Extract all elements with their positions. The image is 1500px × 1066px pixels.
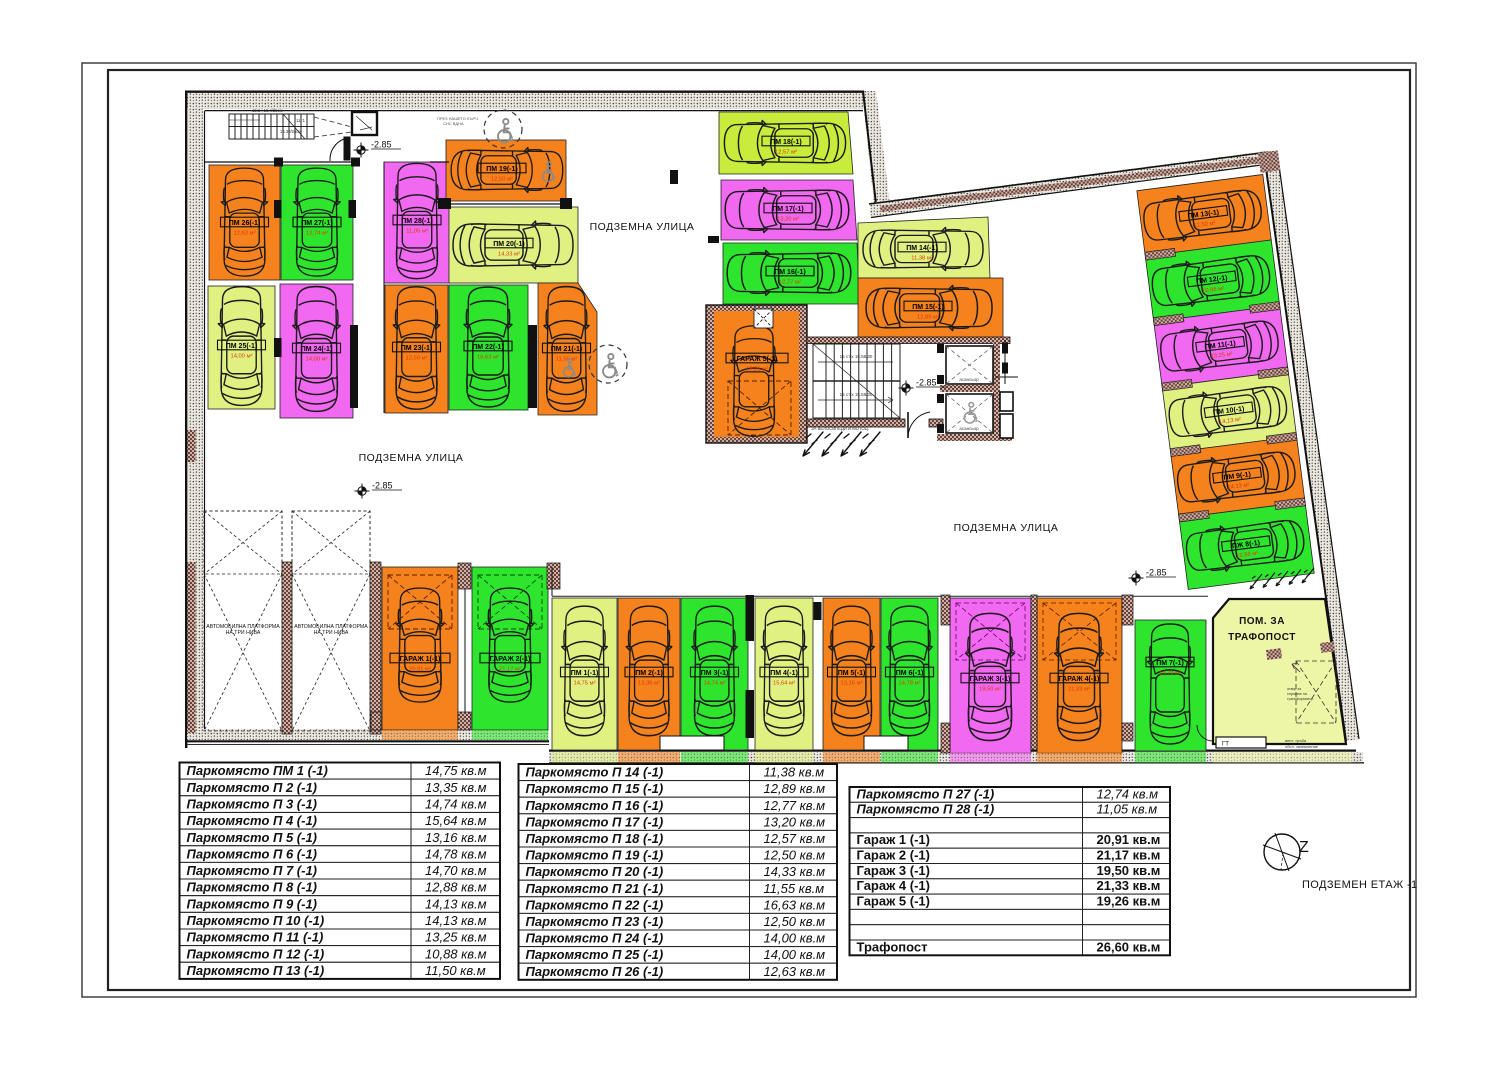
svg-text:20,91 кв.м: 20,91 кв.м — [1097, 832, 1161, 847]
svg-text:12,88 кв.м: 12,88 кв.м — [425, 880, 487, 895]
svg-text:Гараж 1 (-1): Гараж 1 (-1) — [857, 832, 931, 847]
svg-text:асансьор: асансьор — [959, 377, 979, 382]
svg-text:14,75 кв.м: 14,75 кв.м — [425, 763, 487, 778]
svg-text:15,64 м²: 15,64 м² — [773, 681, 795, 687]
svg-text:ПМ 24(-1): ПМ 24(-1) — [301, 346, 332, 353]
svg-text:Z: Z — [1299, 839, 1309, 856]
svg-text:ГАРАЖ 5(-1): ГАРАЖ 5(-1) — [737, 356, 778, 363]
svg-text:Паркомясто П 19 (-1): Паркомясто П 19 (-1) — [526, 848, 664, 863]
svg-text:11,55 м²: 11,55 м² — [556, 357, 578, 363]
svg-text:19,50 м²: 19,50 м² — [979, 687, 1001, 693]
svg-text:-2.85: -2.85 — [371, 140, 392, 150]
svg-text:14,70 кв.м: 14,70 кв.м — [425, 863, 487, 878]
svg-text:Гараж 3 (-1): Гараж 3 (-1) — [857, 863, 931, 878]
svg-text:15 ст x 15.58/30: 15 ст x 15.58/30 — [840, 392, 873, 397]
svg-text:12,50 м²: 12,50 м² — [491, 177, 513, 183]
svg-text:12,74 кв.м: 12,74 кв.м — [1097, 786, 1159, 801]
svg-text:ПОДЗЕМНА УЛИЦА: ПОДЗЕМНА УЛИЦА — [359, 452, 464, 464]
svg-text:ПМ 5(-1): ПМ 5(-1) — [838, 670, 866, 677]
svg-text:ПМ 14(-1): ПМ 14(-1) — [906, 245, 937, 252]
svg-text:15,64 кв.м: 15,64 кв.м — [425, 813, 487, 828]
svg-text:13,35 м²: 13,35 м² — [638, 681, 660, 687]
svg-text:Паркомясто П 10 (-1): Паркомясто П 10 (-1) — [187, 913, 325, 928]
svg-text:НА ТРИ НИВА: НА ТРИ НИВА — [314, 630, 349, 636]
svg-text:14,13 кв.м: 14,13 кв.м — [425, 896, 487, 911]
svg-text:Гараж 2 (-1): Гараж 2 (-1) — [857, 848, 931, 863]
svg-text:НА ТРИ НИВА: НА ТРИ НИВА — [226, 630, 261, 636]
svg-text:12,57 кв.м: 12,57 кв.м — [764, 831, 826, 846]
svg-text:-2.85: -2.85 — [372, 481, 393, 491]
svg-text:асансьор: асансьор — [959, 426, 979, 431]
svg-text:ГАРАЖ 3(-1): ГАРАЖ 3(-1) — [970, 676, 1011, 683]
svg-text:Паркомясто П 14 (-1): Паркомясто П 14 (-1) — [526, 765, 664, 780]
svg-text:ПМ 4(-1): ПМ 4(-1) — [770, 670, 798, 677]
svg-text:Паркомясто ПМ 1 (-1): Паркомясто ПМ 1 (-1) — [187, 763, 328, 778]
svg-text:вент. тръба: вент. тръба — [1285, 738, 1307, 743]
svg-text:Паркомясто П 9 (-1): Паркомясто П 9 (-1) — [187, 896, 318, 911]
svg-text:ЗА ВЕЛОСИПЕДИ И МОТОЦ.: ЗА ВЕЛОСИПЕДИ И МОТОЦ. — [811, 426, 869, 431]
svg-text:Паркомясто П 24 (-1): Паркомясто П 24 (-1) — [526, 931, 664, 946]
svg-text:Паркомясто П 12 (-1): Паркомясто П 12 (-1) — [187, 946, 325, 961]
svg-text:ПМ 26(-1): ПМ 26(-1) — [229, 220, 260, 227]
svg-text:ГТ: ГТ — [1222, 742, 1229, 748]
svg-text:26,60 кв.м: 26,60 кв.м — [1097, 939, 1161, 954]
svg-text:14,33 кв.м: 14,33 кв.м — [764, 864, 826, 879]
svg-text:Паркомясто П 21 (-1): Паркомясто П 21 (-1) — [526, 881, 664, 896]
svg-text:15.30/25см: 15.30/25см — [280, 129, 301, 134]
svg-text:ПМ 21(-1): ПМ 21(-1) — [551, 346, 582, 353]
svg-text:11,38 м²: 11,38 м² — [911, 256, 933, 262]
svg-text:Гараж 5 (-1): Гараж 5 (-1) — [857, 893, 931, 908]
svg-text:12,89 кв.м: 12,89 кв.м — [764, 781, 826, 796]
svg-text:ПМ 7(-1): ПМ 7(-1) — [1156, 660, 1184, 667]
svg-text:12,89 м²: 12,89 м² — [917, 315, 939, 321]
svg-text:14,78 м²: 14,78 м² — [898, 681, 920, 687]
svg-text:ПОМ. ЗА: ПОМ. ЗА — [1239, 616, 1285, 627]
svg-text:12,57 м²: 12,57 м² — [775, 150, 797, 156]
svg-text:14,00 кв.м: 14,00 кв.м — [764, 931, 826, 946]
svg-text:-2.85: -2.85 — [916, 378, 937, 388]
svg-text:14,00 м²: 14,00 м² — [305, 357, 327, 363]
svg-text:Трафопост: Трафопост — [857, 939, 928, 954]
svg-text:14,70 м²: 14,70 м² — [1159, 671, 1181, 677]
svg-text:Паркомясто П 5 (-1): Паркомясто П 5 (-1) — [187, 830, 318, 845]
svg-text:ПОДЗЕМНА УЛИЦА: ПОДЗЕМНА УЛИЦА — [590, 221, 695, 233]
svg-text:ПМ 6(-1): ПМ 6(-1) — [896, 670, 924, 677]
svg-text:13,20 кв.м: 13,20 кв.м — [764, 814, 826, 829]
svg-text:14,00 м²: 14,00 м² — [230, 354, 252, 360]
svg-text:12,74 м²: 12,74 м² — [306, 231, 328, 237]
svg-text:Паркомясто П 22 (-1): Паркомясто П 22 (-1) — [526, 897, 664, 912]
svg-text:11,05 м²: 11,05 м² — [406, 229, 428, 235]
svg-text:Паркомясто П 6 (-1): Паркомясто П 6 (-1) — [187, 846, 318, 861]
svg-text:ПМ 20(-1): ПМ 20(-1) — [493, 241, 524, 248]
svg-text:13,20 м²: 13,20 м² — [777, 217, 799, 223]
svg-text:13,16 м²: 13,16 м² — [840, 681, 862, 687]
svg-text:14,75 м²: 14,75 м² — [573, 681, 595, 687]
svg-text:Паркомясто П 4 (-1): Паркомясто П 4 (-1) — [187, 813, 318, 828]
svg-text:16,63 м²: 16,63 м² — [477, 355, 499, 361]
svg-text:14,74 кв.м: 14,74 кв.м — [425, 796, 487, 811]
svg-text:12,63 кв.м: 12,63 кв.м — [764, 964, 826, 979]
svg-text:ПМ 15(-1): ПМ 15(-1) — [912, 304, 943, 311]
svg-text:ПМ 17(-1): ПМ 17(-1) — [772, 206, 803, 213]
svg-text:13,16 кв.м: 13,16 кв.м — [425, 830, 487, 845]
svg-text:19,50 кв.м: 19,50 кв.м — [1097, 863, 1161, 878]
svg-text:15:1 : 15.4/25см: 15:1 : 15.4/25см — [252, 108, 283, 113]
svg-text:трансформатор: трансформатор — [1287, 697, 1313, 701]
svg-text:Паркомясто П 13 (-1): Паркомясто П 13 (-1) — [187, 963, 325, 978]
svg-text:14,00 кв.м: 14,00 кв.м — [764, 947, 826, 962]
svg-text:ПМ 22(-1): ПМ 22(-1) — [472, 344, 503, 351]
svg-text:19,26 кв.м: 19,26 кв.м — [1097, 893, 1161, 908]
svg-text:обсл. заземление: обсл. заземление — [1285, 744, 1319, 749]
svg-text:Паркомясто П 11 (-1): Паркомясто П 11 (-1) — [187, 930, 324, 945]
svg-text:ГАРАЖ 1(-1): ГАРАЖ 1(-1) — [400, 656, 441, 663]
svg-text:Паркомясто П 2 (-1): Паркомясто П 2 (-1) — [187, 780, 318, 795]
svg-text:Паркомясто П 23 (-1): Паркомясто П 23 (-1) — [526, 914, 664, 929]
svg-text:21,33 кв.м: 21,33 кв.м — [1097, 878, 1161, 893]
svg-text:Паркомясто П 25 (-1): Паркомясто П 25 (-1) — [526, 947, 664, 962]
svg-text:21,33 м²: 21,33 м² — [1068, 687, 1090, 693]
svg-text:11,38 кв.м: 11,38 кв.м — [764, 765, 825, 780]
svg-text:11,55 кв.м: 11,55 кв.м — [764, 881, 825, 896]
svg-text:спускане на: спускане на — [1287, 692, 1307, 696]
svg-text:Паркомясто П 3 (-1): Паркомясто П 3 (-1) — [187, 796, 318, 811]
svg-text:ГАРАЖ 2(-1): ГАРАЖ 2(-1) — [490, 656, 531, 663]
svg-text:ПМ 27(-1): ПМ 27(-1) — [301, 220, 332, 227]
svg-text:Паркомясто П 28 (-1): Паркомясто П 28 (-1) — [857, 802, 995, 817]
svg-text:ТРАФОПОСТ: ТРАФОПОСТ — [1228, 632, 1296, 643]
svg-text:14,78 кв.м: 14,78 кв.м — [425, 846, 487, 861]
svg-text:10,88 кв.м: 10,88 кв.м — [425, 946, 487, 961]
svg-text:ПМ 16(-1): ПМ 16(-1) — [774, 269, 805, 276]
svg-text:ПОДЗЕМЕН ЕТАЖ -1: ПОДЗЕМЕН ЕТАЖ -1 — [1302, 879, 1418, 891]
svg-text:13,35 кв.м: 13,35 кв.м — [425, 780, 487, 795]
svg-text:Паркомясто П 7 (-1): Паркомясто П 7 (-1) — [187, 863, 318, 878]
svg-text:14,13 кв.м: 14,13 кв.м — [425, 913, 487, 928]
svg-text:ПМ 23(-1): ПМ 23(-1) — [401, 345, 432, 352]
svg-text:ПМ 18(-1): ПМ 18(-1) — [770, 139, 801, 146]
svg-text:11 :1: 11 :1 — [296, 118, 306, 123]
svg-text:ГАРАЖ 4(-1): ГАРАЖ 4(-1) — [1059, 676, 1100, 683]
svg-text:11,05 кв.м: 11,05 кв.м — [1097, 802, 1158, 817]
svg-text:12,63 м²: 12,63 м² — [233, 231, 255, 237]
svg-text:12,77 кв.м: 12,77 кв.м — [764, 798, 826, 813]
svg-text:ПМ 28(-1): ПМ 28(-1) — [401, 218, 432, 225]
svg-text:Паркомясто П 27 (-1): Паркомясто П 27 (-1) — [857, 786, 995, 801]
svg-text:ПМ 25(-1): ПМ 25(-1) — [226, 343, 257, 350]
svg-text:21,17 кв.м: 21,17 кв.м — [1097, 848, 1161, 863]
svg-text:Паркомясто П 17 (-1): Паркомясто П 17 (-1) — [526, 814, 664, 829]
svg-text:ПМ 19(-1): ПМ 19(-1) — [486, 166, 517, 173]
svg-text:Паркомясто П 8 (-1): Паркомясто П 8 (-1) — [187, 880, 318, 895]
svg-text:-2.85: -2.85 — [1146, 568, 1167, 578]
svg-text:12,50 м²: 12,50 м² — [405, 356, 427, 362]
svg-text:Паркомясто П 20 (-1): Паркомясто П 20 (-1) — [526, 864, 664, 879]
svg-text:13,25 кв.м: 13,25 кв.м — [425, 930, 487, 945]
svg-text:12,50 кв.м: 12,50 кв.м — [764, 848, 826, 863]
svg-text:Паркомясто П 16 (-1): Паркомясто П 16 (-1) — [526, 798, 664, 813]
svg-text:14,33 м²: 14,33 м² — [498, 252, 520, 258]
svg-text:14,74 м²: 14,74 м² — [703, 681, 725, 687]
svg-text:20,91 м²: 20,91 м² — [409, 667, 431, 673]
svg-text:Паркомясто П 26 (-1): Паркомясто П 26 (-1) — [526, 964, 664, 979]
svg-text:16,63 кв.м: 16,63 кв.м — [764, 897, 826, 912]
svg-text:СНС ВДНА: СНС ВДНА — [443, 121, 464, 126]
svg-text:ПМ 3(-1): ПМ 3(-1) — [701, 670, 729, 677]
svg-text:Гараж 4 (-1): Гараж 4 (-1) — [857, 878, 931, 893]
svg-text:19,26 м²: 19,26 м² — [746, 367, 768, 373]
svg-text:15 ст x 15.58/30: 15 ст x 15.58/30 — [840, 354, 873, 359]
svg-text:Паркомясто П 15 (-1): Паркомясто П 15 (-1) — [526, 781, 664, 796]
svg-text:ПМ 1(-1): ПМ 1(-1) — [571, 670, 599, 677]
svg-text:12,50 кв.м: 12,50 кв.м — [764, 914, 826, 929]
svg-text:11,50 кв.м: 11,50 кв.м — [425, 963, 486, 978]
svg-text:ПМ 2(-1): ПМ 2(-1) — [635, 670, 663, 677]
svg-text:ПОДЗЕМНА УЛИЦА: ПОДЗЕМНА УЛИЦА — [954, 522, 1059, 534]
svg-text:21,17 м²: 21,17 м² — [499, 667, 521, 673]
svg-text:Паркомясто П 18 (-1): Паркомясто П 18 (-1) — [526, 831, 664, 846]
svg-text:12,77 м²: 12,77 м² — [779, 280, 801, 286]
svg-text:отвор за: отвор за — [1287, 687, 1301, 691]
